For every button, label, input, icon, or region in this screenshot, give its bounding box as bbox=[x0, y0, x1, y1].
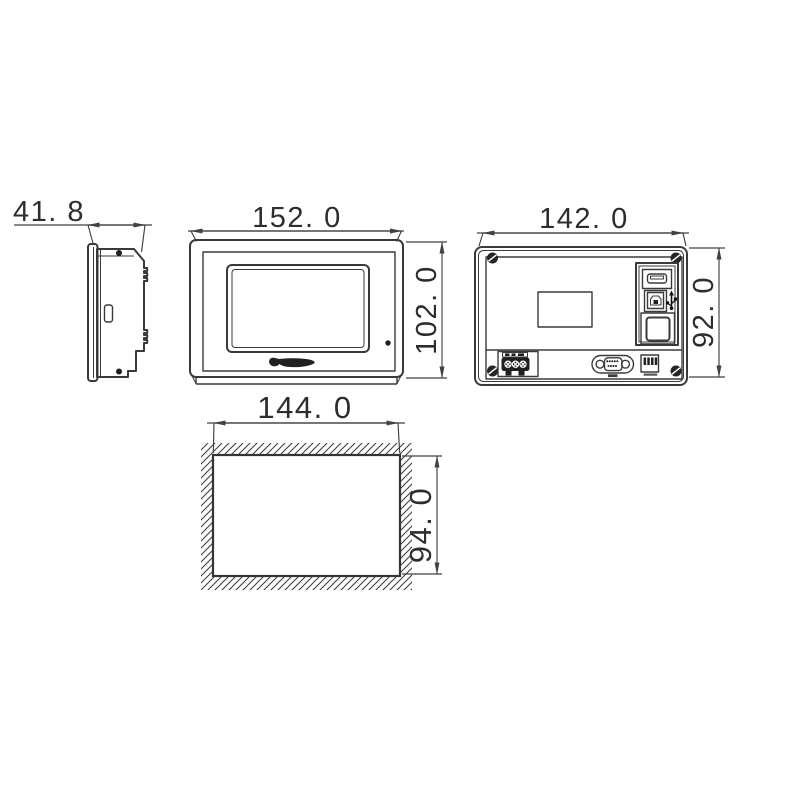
dimension-text-front-height: 102. 0 bbox=[411, 265, 443, 355]
card-slot bbox=[647, 318, 670, 341]
touchscreen bbox=[232, 270, 364, 348]
dimension-drawing-svg: 41. 8 152. 0 102. 0 bbox=[0, 0, 800, 800]
front-width-dimension: 152. 0 bbox=[188, 202, 404, 242]
front-bezel-outline bbox=[190, 240, 403, 377]
bottom-connector-strip bbox=[486, 350, 682, 377]
cutout-opening bbox=[213, 455, 400, 576]
dimension-text-rear-height: 92. 0 bbox=[688, 276, 720, 348]
touchscreen-frame bbox=[227, 265, 369, 352]
usb-a-port bbox=[648, 274, 667, 283]
corner-screw bbox=[671, 253, 681, 263]
db9-label-mark bbox=[608, 374, 618, 377]
rear-width-dimension: 142. 0 bbox=[477, 203, 689, 246]
rear-view: 142. 0 92. 0 bbox=[475, 203, 725, 385]
extension-line bbox=[479, 233, 483, 246]
usb-b-port bbox=[648, 293, 664, 309]
brand-logo bbox=[269, 357, 315, 367]
front-bottom-skirt bbox=[191, 374, 402, 385]
screw-boss-bottom bbox=[116, 369, 122, 375]
dip-connector bbox=[641, 355, 659, 376]
io-panel bbox=[636, 263, 678, 345]
side-view: 41. 8 bbox=[13, 196, 152, 381]
corner-screw bbox=[671, 366, 681, 376]
led-indicator bbox=[385, 340, 390, 345]
cutout-view: 144. 0 94. 0 bbox=[201, 390, 442, 590]
extension-line bbox=[142, 225, 146, 252]
db9-pins bbox=[606, 360, 618, 367]
db9-shell bbox=[605, 358, 623, 371]
rear-height-dimension: 92. 0 bbox=[688, 248, 725, 377]
front-view: 152. 0 102. 0 bbox=[188, 202, 447, 384]
dimension-text-depth: 41. 8 bbox=[13, 196, 85, 228]
dimension-text-cutout-width: 144. 0 bbox=[257, 390, 352, 425]
corner-screw bbox=[488, 253, 498, 263]
drawing-canvas: 41. 8 152. 0 102. 0 bbox=[0, 0, 800, 800]
db9-screw-right bbox=[622, 360, 630, 368]
corner-screw bbox=[488, 366, 498, 376]
power-terminal-block bbox=[502, 353, 530, 376]
extension-line bbox=[88, 225, 94, 245]
db9-serial-port bbox=[592, 356, 634, 378]
dimension-text-front-width: 152. 0 bbox=[252, 202, 342, 234]
screw-boss-top bbox=[116, 250, 122, 256]
nameplate-label bbox=[538, 292, 592, 327]
dimension-text-rear-width: 142. 0 bbox=[539, 203, 629, 235]
side-slot bbox=[105, 305, 113, 322]
db9-screw-left bbox=[596, 360, 604, 368]
dip-label-mark bbox=[644, 374, 658, 376]
front-height-dimension: 102. 0 bbox=[406, 242, 447, 378]
extension-line bbox=[683, 233, 686, 246]
side-depth-dimension: 41. 8 bbox=[13, 196, 152, 252]
